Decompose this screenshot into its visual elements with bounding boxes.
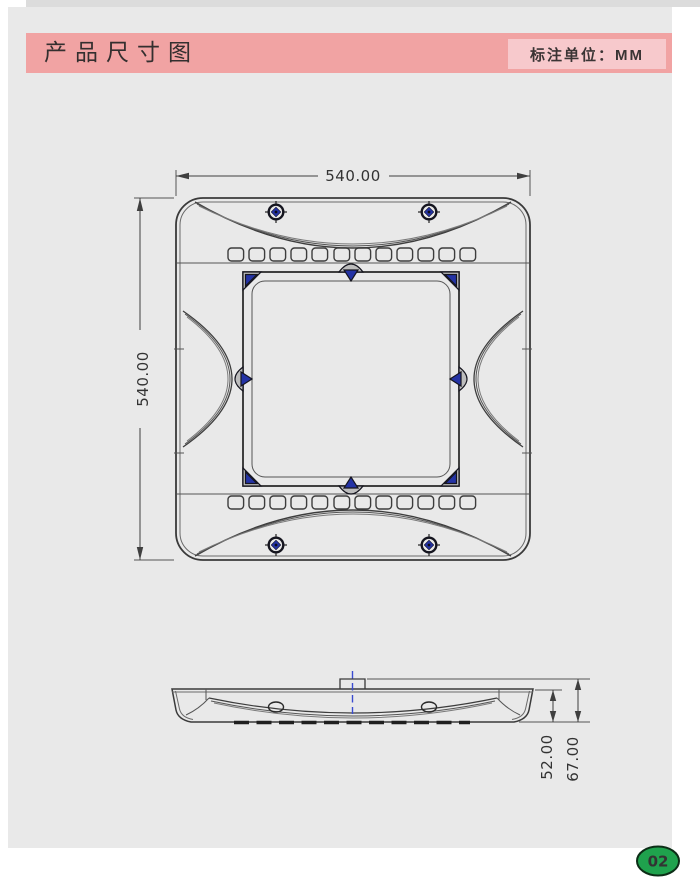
left-arc-band	[183, 311, 232, 447]
top-arc-band	[195, 202, 511, 248]
bottom-arc-band	[195, 510, 511, 556]
side-hole-left	[269, 702, 284, 712]
housing-outline	[176, 198, 530, 560]
dim-67-label: 67.00	[564, 736, 582, 781]
side-hole-right	[422, 702, 437, 712]
dim-width-540: 540.00	[176, 167, 530, 196]
lens-frame-outer	[243, 272, 459, 486]
dim-52-label: 52.00	[538, 734, 556, 779]
lens-frame-inner	[252, 281, 450, 477]
dim-height-540: 540.00	[134, 198, 174, 560]
edge-clip-markers	[235, 264, 467, 494]
page-number: 02	[648, 853, 669, 871]
corner-clip-markers	[243, 272, 459, 486]
dim-67: 67.00	[367, 679, 590, 782]
right-arc-band	[474, 311, 523, 447]
side-view-drawing: 52.00 67.00	[172, 671, 590, 782]
dim-height-label: 540.00	[134, 351, 152, 407]
vent-slots-bottom	[228, 496, 476, 509]
page-number-badge: 02	[637, 847, 679, 876]
technical-drawing: 540.00 540.00	[0, 0, 700, 883]
dim-width-label: 540.00	[325, 167, 381, 185]
vent-slots-top	[228, 248, 476, 261]
product-dimension-page: 产品尺寸图 标注单位：MM	[0, 0, 700, 883]
top-view-drawing: 540.00 540.00	[134, 167, 532, 560]
